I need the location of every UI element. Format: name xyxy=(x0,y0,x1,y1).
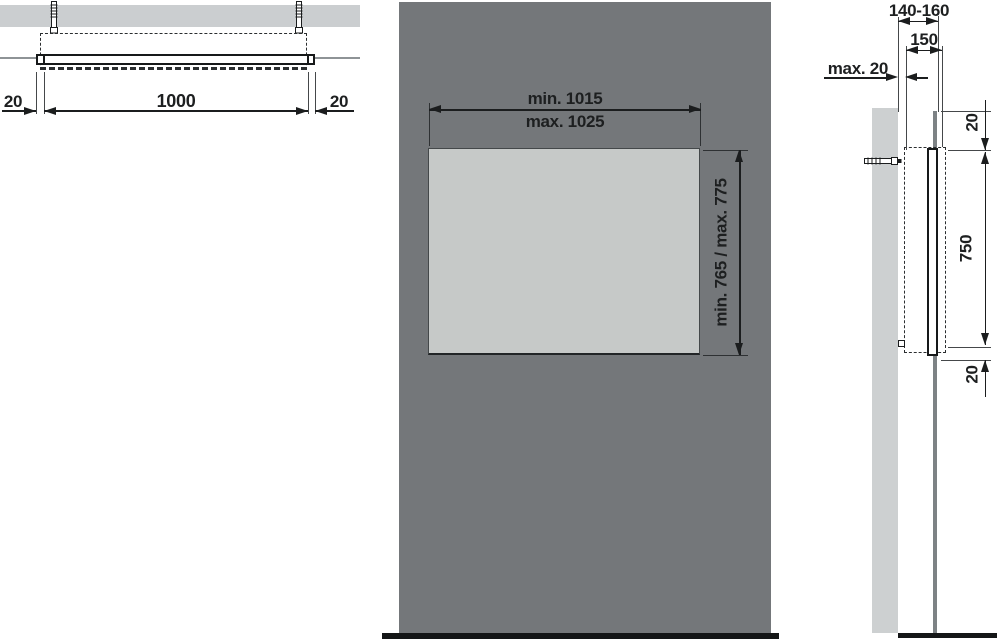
fixture-end-cap-right xyxy=(307,54,309,65)
arrowhead-icon xyxy=(905,73,917,81)
arrowhead-icon xyxy=(898,17,910,25)
mirror-panel xyxy=(428,148,700,355)
floor-line-side xyxy=(898,633,997,638)
dim-offset-left: 20 xyxy=(0,93,26,110)
extension-line xyxy=(948,347,991,348)
dim-cutout-width-min: min. 1015 xyxy=(429,90,701,107)
light-fixture-bar xyxy=(36,54,315,65)
extension-line xyxy=(36,72,37,114)
extension-line xyxy=(942,46,943,147)
arrowhead-icon xyxy=(981,360,989,372)
mounting-frame-outline-side xyxy=(904,147,946,353)
dimension-line xyxy=(739,150,741,355)
dim-top-offset: 20 xyxy=(964,103,981,143)
arrowhead-icon xyxy=(981,138,989,150)
extension-line xyxy=(906,46,907,150)
arrowhead-icon xyxy=(886,73,898,81)
extension-line xyxy=(308,72,309,114)
mirror-side-profile xyxy=(927,148,938,356)
dim-wall-distance: 140-160 xyxy=(880,2,958,19)
arrowhead-icon xyxy=(735,150,743,162)
anchor-screw-icon-right xyxy=(294,1,304,34)
dim-bottom-offset: 20 xyxy=(964,355,981,395)
installation-drawing: 20 1000 20 min. 1015 max. 1025 min. 765 … xyxy=(0,0,1000,640)
dim-cutout-height: min. 765 / max. 775 xyxy=(713,143,730,363)
dim-length: 1000 xyxy=(44,92,308,110)
bracket-square xyxy=(898,340,905,347)
dim-offset-right: 20 xyxy=(324,93,354,110)
dimension-line xyxy=(985,152,987,345)
anchor-screw-icon-side xyxy=(864,156,904,166)
dim-frame-height: 750 xyxy=(958,219,975,279)
arrowhead-icon xyxy=(981,152,989,164)
fixture-end-cap-left xyxy=(43,54,45,65)
dimension-line xyxy=(824,77,886,79)
wall-section-side xyxy=(872,108,898,633)
arrowhead-icon xyxy=(906,46,918,54)
arrowhead-icon xyxy=(735,343,743,355)
floor-line xyxy=(382,633,779,639)
arrowhead-icon xyxy=(930,46,942,54)
dimension-line xyxy=(917,77,928,79)
arrowhead-icon xyxy=(926,17,938,25)
dim-cutout-width-max: max. 1025 xyxy=(429,113,701,130)
dim-gap: max. 20 xyxy=(818,60,888,77)
dimension-line xyxy=(429,109,701,111)
anchor-screw-icon-left xyxy=(49,1,59,34)
arrowhead-icon xyxy=(981,333,989,345)
